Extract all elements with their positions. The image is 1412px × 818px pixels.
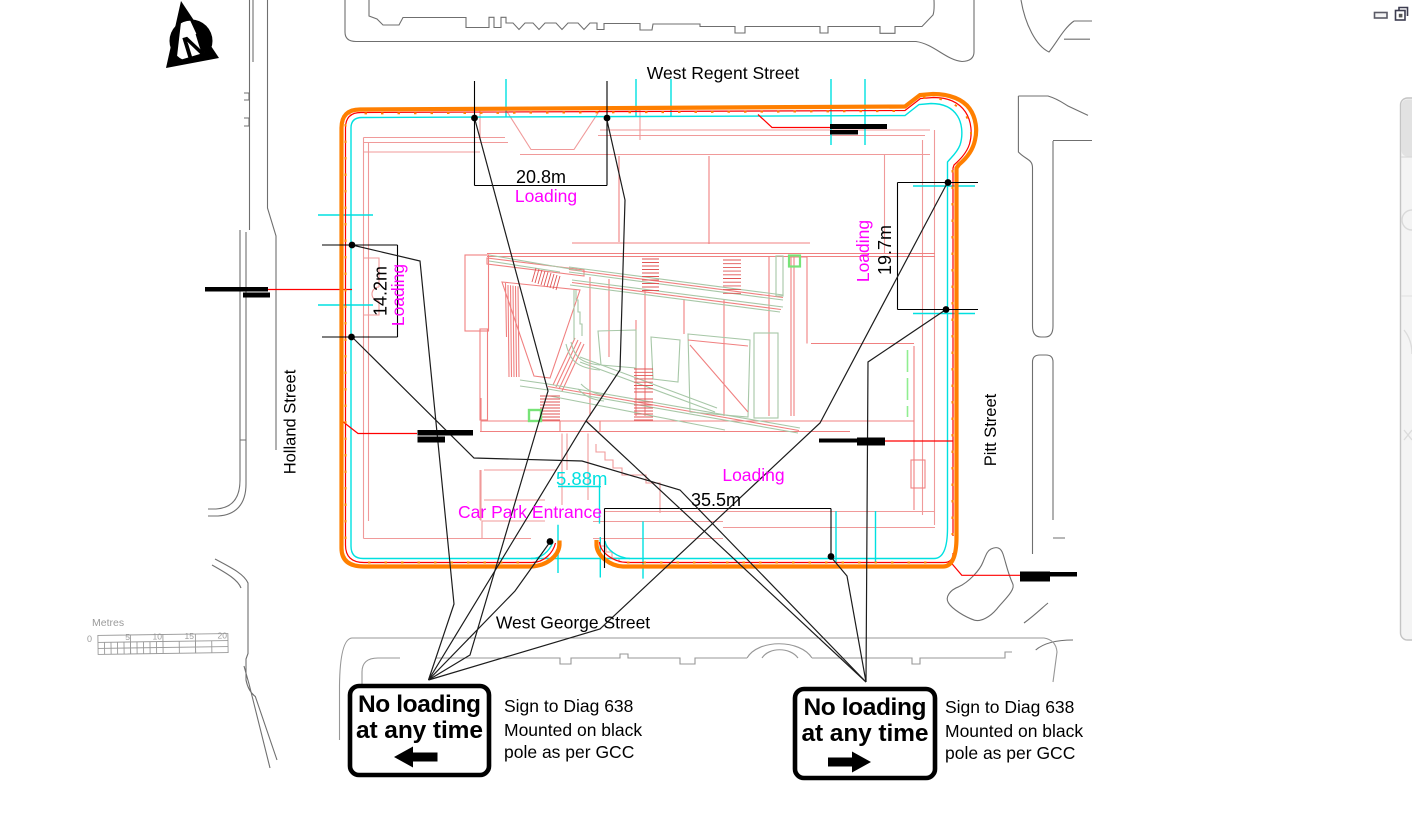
svg-text:West Regent Street: West Regent Street — [647, 63, 800, 83]
svg-text:No loading: No loading — [358, 691, 481, 718]
svg-text:0: 0 — [87, 634, 92, 644]
svg-text:19.7m: 19.7m — [875, 225, 895, 275]
svg-text:20: 20 — [218, 631, 228, 641]
svg-text:pole as per GCC: pole as per GCC — [504, 742, 634, 762]
svg-text:20.8m: 20.8m — [516, 167, 566, 187]
svg-text:Loading: Loading — [853, 220, 873, 282]
svg-text:35.5m: 35.5m — [691, 490, 741, 510]
svg-text:Loading: Loading — [515, 186, 577, 206]
svg-text:Pitt Street: Pitt Street — [982, 393, 1000, 466]
svg-text:5: 5 — [125, 632, 130, 642]
svg-text:West George Street: West George Street — [496, 613, 650, 633]
svg-text:10: 10 — [153, 632, 163, 642]
svg-text:No loading: No loading — [804, 694, 927, 721]
svg-text:Loading: Loading — [722, 465, 784, 485]
svg-text:Sign to Diag 638: Sign to Diag 638 — [945, 697, 1074, 717]
svg-text:Mounted on black: Mounted on black — [504, 720, 642, 740]
svg-text:Car Park Entrance: Car Park Entrance — [458, 502, 602, 522]
svg-text:Holland Street: Holland Street — [282, 369, 300, 474]
svg-text:at any time: at any time — [802, 720, 929, 747]
svg-text:Sign to Diag 638: Sign to Diag 638 — [504, 696, 633, 716]
svg-text:pole as per GCC: pole as per GCC — [945, 743, 1075, 763]
svg-text:at any time: at any time — [356, 717, 483, 744]
svg-text:Mounted on black: Mounted on black — [945, 721, 1083, 741]
svg-text:Loading: Loading — [388, 264, 408, 326]
svg-text:Metres: Metres — [92, 617, 124, 629]
svg-text:15: 15 — [185, 631, 195, 641]
